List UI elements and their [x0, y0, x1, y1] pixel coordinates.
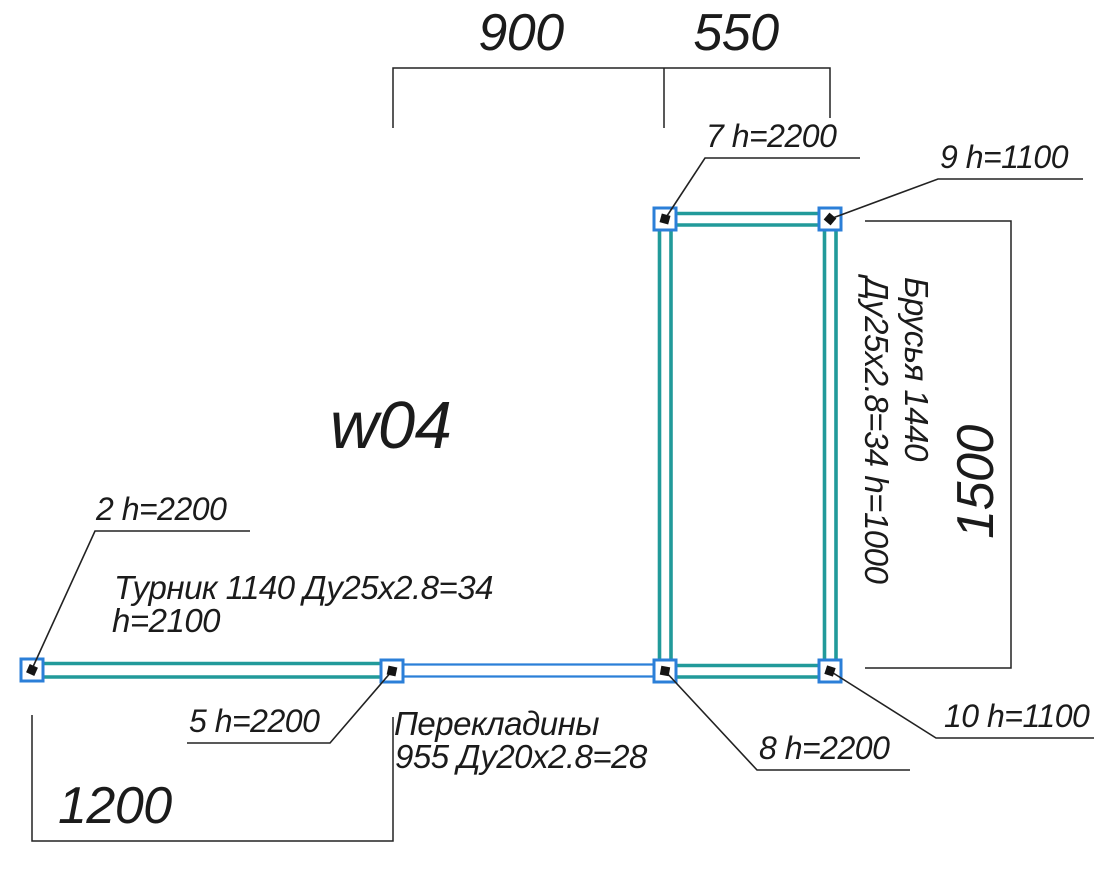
perekladiny-note-line1: Перекладины: [394, 707, 599, 740]
post-5-dot: [387, 666, 398, 677]
post-label-9: 9 h=1100: [940, 141, 1068, 173]
dimension-550: 550: [656, 7, 816, 59]
post-label-2: 2 h=2200: [96, 493, 226, 525]
brusya-note: Брусья 1440 Ду25x2.8=34 h=1000: [856, 277, 936, 597]
drawing-title: w04: [330, 392, 451, 459]
brusya-note-line2: Ду25x2.8=34 h=1000: [856, 277, 896, 597]
post-label-5: 5 h=2200: [189, 705, 319, 737]
pipe-lines-blue: [403, 665, 654, 677]
perekladiny-note-line2: 955 Ду20x2.8=28: [395, 740, 647, 773]
turnik-note-line1: Турник 1140 Ду25x2.8=34: [114, 571, 493, 604]
post-label-7: 7 h=2200: [706, 120, 836, 152]
brusya-note-line1: Брусья 1440: [896, 277, 936, 597]
turnik-note-line2: h=2100: [112, 604, 220, 637]
dimension-1500: 1500: [951, 412, 1001, 552]
leader-post-9: [830, 179, 1083, 219]
cad-drawing: 900 550 1200 1500 w04 2 h=2200 7 h=2200 …: [0, 0, 1110, 879]
post-label-8: 8 h=2200: [759, 732, 889, 764]
dimension-900: 900: [441, 7, 601, 59]
post-label-10: 10 h=1100: [944, 700, 1089, 732]
post-8-dot: [660, 666, 670, 676]
dimension-1200: 1200: [58, 780, 172, 832]
